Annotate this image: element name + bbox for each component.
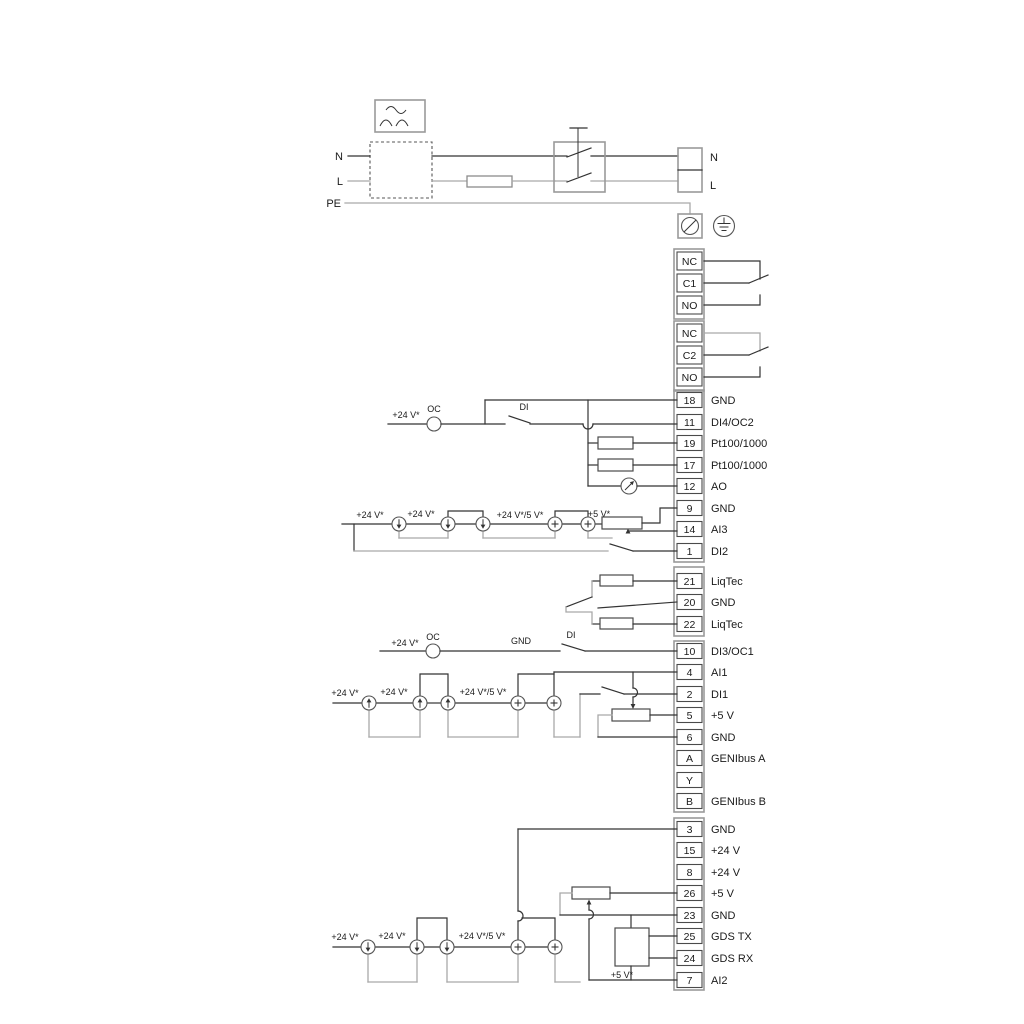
svg-text:GND: GND: [711, 910, 736, 922]
svg-text:+24 V: +24 V: [711, 845, 741, 857]
relay2-switch-arm: [749, 347, 768, 355]
liqtec-resistor-2: [600, 618, 633, 629]
svg-text:+24 V*: +24 V*: [331, 688, 359, 698]
wire-hop: [633, 688, 638, 697]
label-l-out: L: [710, 180, 716, 192]
gds-sensor-box: [615, 928, 649, 966]
svg-text:GND: GND: [711, 503, 736, 515]
relay1-no-label: NO: [682, 300, 698, 312]
current-source-icon: [392, 517, 406, 531]
ai1-di1-wiring: +24 V* +24 V* +24 V*/5 V*: [331, 672, 677, 737]
voltage-source-icon: [511, 696, 525, 710]
svg-text:GND: GND: [511, 636, 532, 646]
oc-note: OC: [427, 404, 441, 414]
svg-text:DI1: DI1: [711, 689, 728, 701]
di1-switch: [602, 687, 624, 694]
svg-text:Pt100/1000: Pt100/1000: [711, 438, 767, 450]
mains-section: N L PE N L: [326, 100, 734, 238]
di4-pt100-wiring: +24 V* OC DI: [388, 400, 677, 494]
half-wave-icon: [380, 120, 392, 126]
svg-text:17: 17: [684, 460, 696, 472]
svg-text:+5 V*: +5 V*: [611, 970, 634, 980]
svg-text:+24 V*: +24 V*: [378, 931, 406, 941]
svg-text:26: 26: [684, 888, 696, 900]
label-n-out: N: [710, 152, 718, 164]
sine-wave-icon: [386, 107, 406, 114]
svg-text:DI4/OC2: DI4/OC2: [711, 417, 754, 429]
svg-text:DI3/OC1: DI3/OC1: [711, 646, 754, 658]
current-source-icon: [410, 940, 424, 954]
label-l-in: L: [337, 176, 343, 188]
converter-icon: [375, 100, 425, 132]
svg-text:AO: AO: [711, 481, 727, 493]
svg-text:GND: GND: [711, 732, 736, 744]
di3-wiring: +24 V* OC GND DI: [380, 630, 677, 658]
voltage-source-icon: [548, 940, 562, 954]
di3-switch: [562, 644, 585, 651]
relay2-c-label: C2: [683, 350, 697, 362]
svg-text:3: 3: [687, 824, 693, 836]
ao-meter-icon: [621, 478, 637, 494]
svg-text:23: 23: [684, 910, 696, 922]
earth-icon: [714, 216, 735, 237]
relay1-nc-label: NC: [682, 256, 698, 268]
svg-text:4: 4: [687, 667, 693, 679]
svg-text:+24 V*: +24 V*: [380, 687, 408, 697]
svg-text:OC: OC: [426, 632, 440, 642]
svg-text:11: 11: [684, 417, 695, 429]
label-pe: PE: [326, 198, 341, 210]
v24-note: +24 V*: [392, 410, 420, 420]
svg-text:Pt100/1000: Pt100/1000: [711, 460, 767, 472]
svg-text:+24 V: +24 V: [711, 867, 741, 879]
liqtec-resistor-1: [600, 575, 633, 586]
voltage-source-icon: [581, 517, 595, 531]
relay-2: NC C2 NO: [674, 321, 768, 391]
svg-text:15: 15: [684, 845, 696, 857]
pt100-resistor-1: [598, 437, 633, 449]
di4-switch: [509, 416, 530, 423]
svg-text:+24 V*/5 V*: +24 V*/5 V*: [460, 687, 507, 697]
svg-text:7: 7: [687, 975, 693, 987]
svg-text:12: 12: [684, 481, 696, 493]
svg-text:19: 19: [684, 438, 696, 450]
svg-text:DI: DI: [567, 630, 576, 640]
svg-text:6: 6: [687, 732, 693, 744]
svg-text:22: 22: [684, 619, 696, 631]
svg-text:24: 24: [684, 953, 696, 965]
label-n-in: N: [335, 151, 343, 163]
svg-text:+24 V*: +24 V*: [356, 510, 384, 520]
mains-switch-contact-l: [567, 173, 591, 182]
svg-text:+5 V: +5 V: [711, 710, 735, 722]
open-collector-icon: [427, 417, 441, 431]
svg-text:25: 25: [684, 931, 696, 943]
screw-slot-icon: [684, 220, 696, 232]
liqtec-wiring: [566, 575, 677, 629]
wiper-arrow-icon: [631, 704, 636, 709]
ai3-di2-wiring: +24 V* +24 V* +24 V*/5 V* +5 V*: [342, 508, 677, 551]
svg-text:+24 V*/5 V*: +24 V*/5 V*: [497, 510, 544, 520]
svg-text:GND: GND: [711, 824, 736, 836]
open-collector-icon: [426, 644, 440, 658]
fuse: [467, 176, 512, 187]
di2-switch: [610, 544, 633, 551]
wiring-diagram-page: N L PE N L NC C1 NO NC C2 NO: [0, 0, 1024, 1024]
svg-text:A: A: [686, 753, 693, 765]
voltage-source-icon: [548, 517, 562, 531]
relay1-c-label: C1: [683, 278, 697, 290]
potentiometer-ai1: [612, 709, 650, 721]
filter-box-dashed: [370, 142, 432, 198]
svg-text:2: 2: [687, 689, 693, 701]
svg-text:DI2: DI2: [711, 546, 728, 558]
svg-text:GENIbus B: GENIbus B: [711, 796, 766, 808]
svg-text:LiqTec: LiqTec: [711, 576, 743, 588]
svg-text:10: 10: [684, 646, 696, 658]
svg-text:AI3: AI3: [711, 524, 728, 536]
liqtec-strip: 21 20 22 LiqTec GND LiqTec: [674, 567, 743, 636]
io-strip-2: 10 4 2 5 6 A Y B DI3/OC1 AI1 DI1 +5 V GN…: [674, 641, 766, 812]
svg-text:+24 V*: +24 V*: [391, 638, 419, 648]
current-source-icon: [440, 940, 454, 954]
svg-text:GDS TX: GDS TX: [711, 931, 752, 943]
svg-text:LiqTec: LiqTec: [711, 619, 743, 631]
svg-text:9: 9: [687, 503, 693, 515]
svg-text:GENIbus A: GENIbus A: [711, 753, 766, 765]
voltage-source-icon: [547, 696, 561, 710]
di-note: DI: [520, 402, 529, 412]
svg-text:B: B: [686, 796, 693, 808]
current-source-icon: [441, 696, 455, 710]
svg-text:AI1: AI1: [711, 667, 728, 679]
current-source-icon: [361, 940, 375, 954]
voltage-source-icon: [511, 940, 525, 954]
current-source-icon: [476, 517, 490, 531]
wiring-diagram: N L PE N L NC C1 NO NC C2 NO: [0, 0, 1024, 1024]
svg-text:Y: Y: [686, 775, 693, 787]
svg-text:20: 20: [684, 597, 696, 609]
relay1-switch-arm: [749, 275, 768, 283]
pe-wire: [345, 203, 690, 214]
svg-text:+24 V*: +24 V*: [407, 509, 435, 519]
svg-text:+24 V*: +24 V*: [331, 932, 359, 942]
svg-text:8: 8: [687, 867, 693, 879]
svg-text:5: 5: [687, 710, 693, 722]
potentiometer-ai2: [572, 887, 610, 899]
io-strip-3: 3 15 8 26 23 25 24 7 GND +24 V +24 V +5 …: [674, 818, 754, 990]
current-source-icon: [441, 517, 455, 531]
svg-text:18: 18: [684, 395, 696, 407]
relay2-nc-label: NC: [682, 328, 698, 340]
current-source-icon: [413, 696, 427, 710]
relay-1: NC C1 NO: [674, 249, 768, 319]
gds-ai2-wiring: +24 V* +24 V* +24 V*/5 V*: [331, 829, 677, 982]
svg-text:+5 V: +5 V: [711, 888, 735, 900]
wire-hop: [518, 911, 523, 921]
svg-text:21: 21: [684, 576, 696, 588]
mains-switch-contact-n: [567, 148, 591, 157]
svg-text:GND: GND: [711, 597, 736, 609]
mains-switch: [554, 142, 605, 192]
svg-text:+24 V*/5 V*: +24 V*/5 V*: [459, 931, 506, 941]
potentiometer-ai3: [602, 517, 642, 529]
half-wave-icon: [396, 120, 408, 126]
svg-text:1: 1: [687, 546, 693, 558]
svg-text:AI2: AI2: [711, 975, 728, 987]
relay2-no-label: NO: [682, 372, 698, 384]
svg-text:14: 14: [684, 524, 696, 536]
current-source-icon: [362, 696, 376, 710]
io-strip-1: 18 11 19 17 12 9 14 1 GND DI4/OC2 Pt100/…: [674, 390, 767, 562]
svg-text:GDS RX: GDS RX: [711, 953, 754, 965]
pt100-resistor-2: [598, 459, 633, 471]
svg-text:GND: GND: [711, 395, 736, 407]
